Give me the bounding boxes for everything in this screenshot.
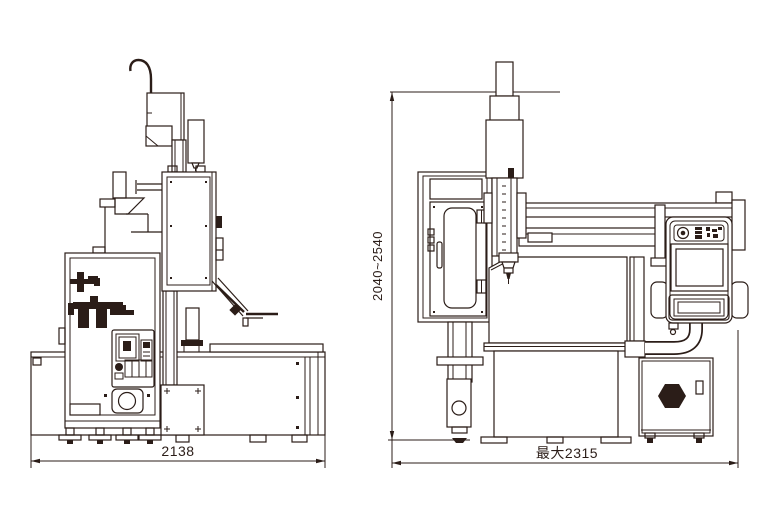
cable-conduit xyxy=(625,257,645,357)
front-width-dim-label: 2138 xyxy=(161,443,194,459)
blower-cabinet xyxy=(639,358,713,443)
side-width-dim-label: 最大2315 xyxy=(536,445,598,461)
side-view: 2040~2540 最大2315 xyxy=(370,62,748,468)
frame-steps xyxy=(93,172,164,253)
lifting-hook-icon xyxy=(130,60,151,93)
front-width-dimension: 2138 xyxy=(31,430,325,468)
electrical-cabinet xyxy=(59,253,161,444)
side-height-dim-label: 2040~2540 xyxy=(370,231,385,301)
stand-leg xyxy=(437,322,483,443)
lifting-hook-and-head xyxy=(130,60,204,172)
stand-cabinet xyxy=(418,172,492,443)
technical-drawing-canvas: 2138 xyxy=(0,0,763,509)
front-view: 2138 xyxy=(31,60,325,468)
dispenser-arm xyxy=(212,278,278,326)
work-enclosure xyxy=(481,257,632,443)
z-axis-panel xyxy=(162,166,223,291)
technical-drawing-page: 2138 xyxy=(0,0,763,509)
pendant-handle-right xyxy=(731,282,748,318)
